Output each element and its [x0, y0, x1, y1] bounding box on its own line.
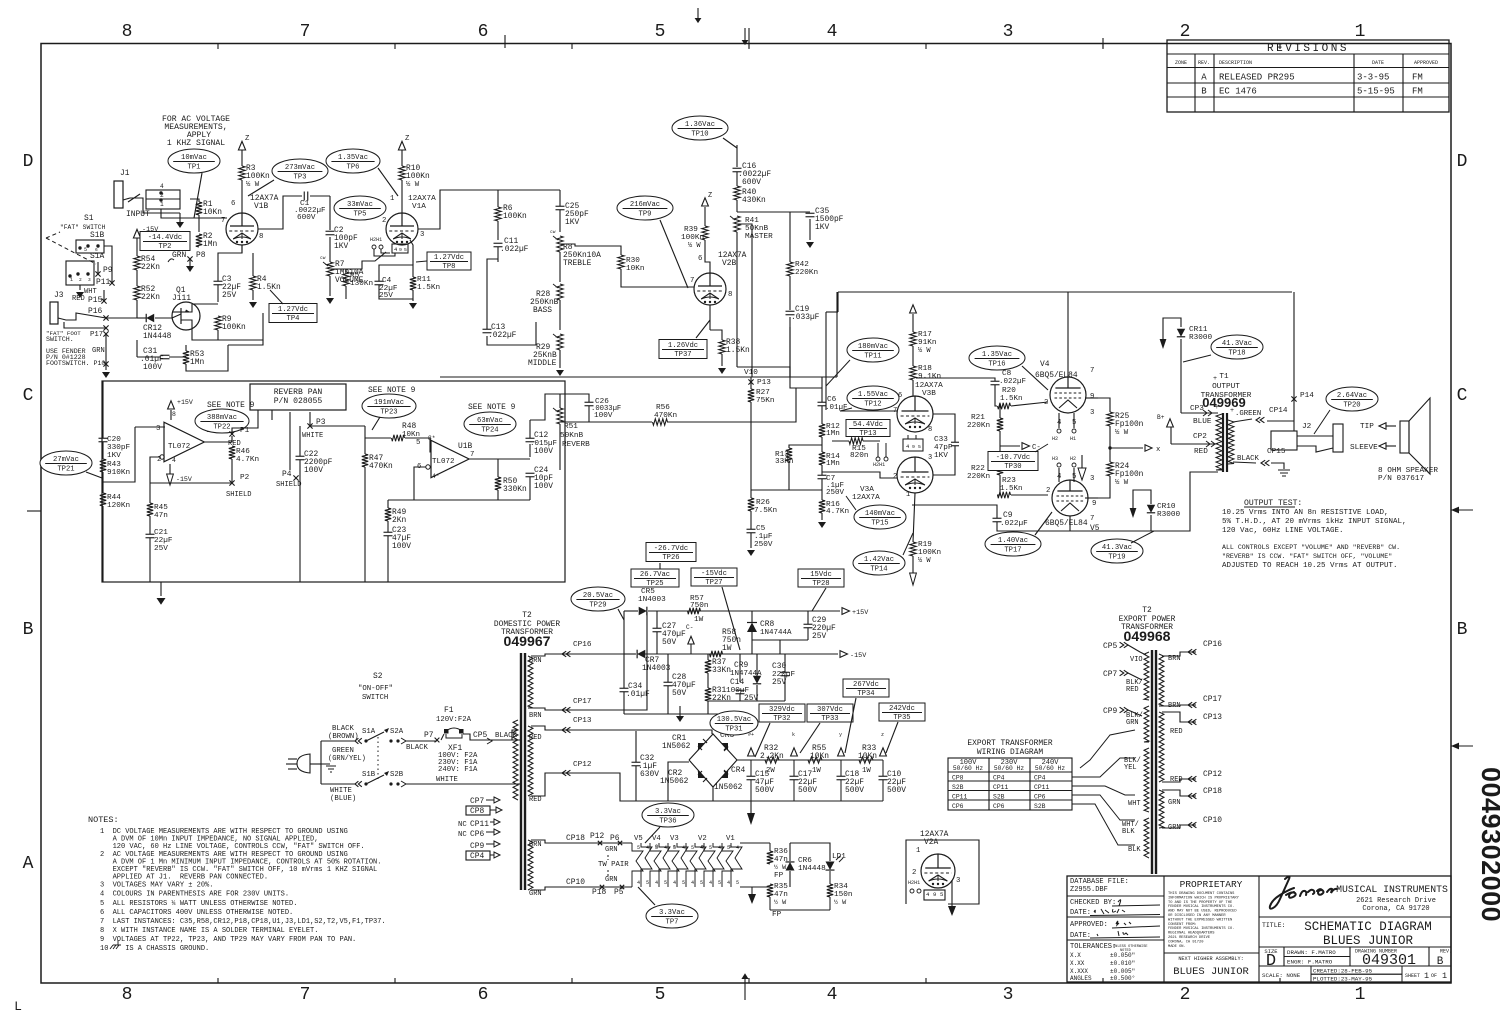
svg-text:CHECKED BY:: CHECKED BY: [1070, 899, 1116, 907]
svg-text:CORONA, CA 91720: CORONA, CA 91720 [1168, 940, 1203, 944]
svg-text:25V: 25V [772, 678, 786, 687]
svg-text:CR9: CR9 [734, 661, 748, 670]
svg-text:100V: 100V [304, 466, 323, 475]
svg-text:SEE NOTE 9: SEE NOTE 9 [468, 403, 516, 412]
svg-text:½ W: ½ W [918, 556, 931, 565]
svg-text:3-3-95: 3-3-95 [1357, 73, 1389, 83]
svg-text:DATE: DATE [1372, 60, 1384, 66]
svg-text:3: 3 [1003, 22, 1014, 42]
svg-text:TP37: TP37 [674, 351, 691, 359]
svg-text:APPLIED AT J1. REVERB PAN CON: APPLIED AT J1. REVERB PAN CONNECTED. [100, 874, 268, 882]
svg-text:330pF: 330pF [107, 444, 130, 452]
svg-text:CP11: CP11 [1034, 784, 1050, 791]
svg-text:R34: R34 [834, 883, 848, 891]
svg-text:1KV: 1KV [334, 242, 348, 251]
svg-text:P11: P11 [96, 278, 110, 287]
svg-text:120V:F2A: 120V:F2A [436, 716, 472, 724]
svg-text:TP36: TP36 [659, 818, 676, 826]
svg-text:TP17: TP17 [1004, 547, 1021, 555]
svg-text:NC: NC [458, 831, 467, 839]
svg-text:1Mn: 1Mn [826, 460, 840, 468]
svg-text:273mVac: 273mVac [285, 164, 315, 172]
svg-text:R56: R56 [656, 404, 670, 412]
svg-text:50V: 50V [672, 689, 686, 698]
svg-text:5: 5 [404, 247, 407, 253]
svg-text:12AX7A: 12AX7A [852, 494, 880, 502]
svg-text:R48: R48 [402, 422, 416, 431]
svg-text:9: 9 [655, 844, 658, 850]
svg-text:CP9: CP9 [1103, 707, 1117, 716]
svg-text:MASTER: MASTER [745, 233, 773, 241]
svg-text:4.7Kn: 4.7Kn [826, 508, 849, 516]
svg-text:WHT: WHT [84, 288, 97, 296]
svg-text:330Kn: 330Kn [503, 485, 527, 494]
svg-text:1.5Kn: 1.5Kn [257, 283, 281, 292]
svg-text:CR5: CR5 [641, 588, 655, 596]
svg-text:12AX7A: 12AX7A [915, 382, 943, 390]
svg-text:216mVac: 216mVac [630, 201, 660, 209]
svg-text:8: 8 [728, 291, 732, 299]
svg-text:6BQ5/EL84: 6BQ5/EL84 [1035, 371, 1078, 380]
svg-text:TP10: TP10 [691, 131, 708, 139]
svg-text:50/60 Hz: 50/60 Hz [994, 765, 1024, 772]
svg-text:MUSICAL INSTRUMENTS: MUSICAL INSTRUMENTS [1336, 884, 1448, 895]
svg-text:1W: 1W [722, 644, 732, 653]
svg-text:2: 2 [382, 217, 386, 225]
svg-text:V5: V5 [634, 835, 643, 843]
svg-text:H2H1: H2H1 [873, 462, 885, 468]
svg-text:B: B [1457, 620, 1468, 640]
svg-text:C9: C9 [1003, 511, 1013, 520]
svg-text:FP: FP [772, 911, 782, 919]
svg-text:Z2955.DBF: Z2955.DBF [1070, 886, 1108, 894]
svg-text:C: C [23, 386, 34, 406]
svg-text:T2: T2 [522, 611, 532, 620]
svg-text:47pF: 47pF [934, 444, 953, 452]
svg-text:TP33: TP33 [821, 715, 838, 723]
svg-text:1.5Kn: 1.5Kn [726, 346, 750, 355]
svg-text:25V: 25V [744, 694, 758, 703]
svg-text:J1: J1 [120, 169, 130, 178]
svg-text:CP9: CP9 [470, 842, 484, 851]
svg-text:MADE ON.: MADE ON. [1168, 945, 1186, 949]
svg-text:CP6: CP6 [470, 830, 484, 839]
svg-text:+: + [1213, 375, 1217, 383]
svg-text:R3000: R3000 [1189, 334, 1212, 342]
svg-text:CP11: CP11 [470, 820, 489, 829]
svg-text:GRN: GRN [92, 347, 105, 355]
svg-text:RED: RED [1126, 686, 1139, 694]
svg-text:4: 4 [682, 845, 685, 851]
svg-text:1.27Vdc: 1.27Vdc [278, 306, 308, 314]
svg-text:7: 7 [1090, 515, 1094, 523]
svg-text:S2B: S2B [390, 771, 404, 779]
svg-text:6: 6 [231, 200, 235, 208]
svg-text:R39: R39 [684, 226, 698, 234]
svg-text:TP16: TP16 [988, 361, 1005, 369]
svg-text:9: 9 [673, 844, 676, 850]
svg-text:P15: P15 [88, 296, 102, 305]
svg-text:GREEN: GREEN [332, 747, 354, 755]
svg-text:CP11: CP11 [952, 794, 968, 801]
svg-text:BLUES JUNIOR: BLUES JUNIOR [1323, 934, 1414, 948]
svg-text:100Kn: 100Kn [681, 234, 704, 242]
svg-text:C14: C14 [730, 678, 744, 687]
svg-text:5: 5 [718, 880, 721, 886]
svg-text:10Kn: 10Kn [626, 265, 644, 273]
svg-text:100Kn: 100Kn [246, 172, 270, 181]
svg-text:.1µF: .1µF [754, 533, 773, 541]
svg-text:RED: RED [1170, 776, 1183, 784]
svg-text:26.7Vac: 26.7Vac [640, 571, 670, 579]
svg-text:RED: RED [1194, 448, 1208, 456]
svg-text:0049302000: 0049302000 [1476, 767, 1500, 922]
svg-text:TP8: TP8 [443, 263, 456, 271]
svg-text:BLUE: BLUE [1193, 418, 1212, 426]
svg-text:D: D [1266, 952, 1276, 971]
svg-text:SHIELD: SHIELD [276, 481, 302, 489]
svg-text:P13: P13 [757, 379, 771, 387]
svg-text:C33: C33 [934, 436, 948, 444]
svg-text:100V: 100V [143, 363, 162, 372]
svg-text:TP24: TP24 [481, 427, 498, 435]
svg-text:½ W: ½ W [774, 863, 787, 872]
svg-text:+15V: +15V [177, 399, 193, 406]
svg-text:P16: P16 [88, 307, 102, 316]
svg-text:1: 1 [916, 847, 921, 855]
svg-text:100Kn: 100Kn [222, 323, 246, 332]
svg-text:V2A: V2A [924, 838, 938, 847]
svg-text:TP19: TP19 [1108, 554, 1125, 562]
svg-text:1KV: 1KV [565, 218, 579, 227]
svg-text:S1B: S1B [90, 231, 104, 240]
svg-text:1W: 1W [812, 767, 821, 775]
svg-text:V10: V10 [744, 369, 758, 377]
svg-text:TP21: TP21 [57, 466, 74, 474]
svg-text:CP5: CP5 [1103, 642, 1117, 651]
svg-text:½ W: ½ W [1115, 428, 1129, 437]
svg-text:CP4: CP4 [1034, 775, 1046, 782]
svg-text:BLACK: BLACK [332, 725, 355, 733]
svg-text:4: 4 [637, 880, 640, 886]
svg-text:049968: 049968 [1123, 628, 1170, 644]
svg-text:.033µF: .033µF [791, 313, 820, 322]
svg-text:1N4448: 1N4448 [798, 865, 826, 873]
svg-text:100V: 100V [534, 482, 553, 491]
svg-text:5: 5 [655, 22, 666, 42]
svg-text:600V: 600V [742, 178, 761, 187]
svg-text:L: L [14, 999, 22, 1014]
svg-text:TP9: TP9 [639, 211, 652, 219]
svg-text:k: k [792, 732, 795, 738]
svg-text:ZONE: ZONE [1175, 60, 1187, 66]
svg-text:½ W: ½ W [774, 898, 787, 907]
svg-text:OF: OF [1431, 973, 1437, 979]
svg-text:22µF: 22µF [154, 537, 173, 545]
svg-text:B: B [1201, 87, 1207, 97]
svg-text:DATE:: DATE: [1070, 932, 1091, 940]
svg-text:5: 5 [682, 880, 685, 886]
svg-text:BLK: BLK [1122, 828, 1135, 836]
svg-text:4: 4 [664, 845, 667, 851]
svg-text:H2: H2 [1070, 456, 1076, 462]
svg-text:1KV: 1KV [815, 223, 829, 232]
svg-text:D: D [23, 152, 34, 172]
svg-text:R51: R51 [564, 423, 578, 431]
svg-text:5: 5 [736, 880, 739, 886]
svg-text:75Kn: 75Kn [756, 397, 774, 405]
svg-text:33mVac: 33mVac [347, 201, 373, 209]
svg-text:P7: P7 [424, 731, 434, 740]
svg-text:7: 7 [300, 22, 311, 42]
svg-text:R23: R23 [1002, 477, 1016, 485]
svg-text:T2: T2 [1142, 606, 1152, 615]
svg-text:SCALE: NONE: SCALE: NONE [1262, 972, 1301, 979]
svg-text:12AX7A: 12AX7A [408, 195, 436, 203]
svg-text:140mVac: 140mVac [865, 510, 895, 518]
svg-text:CP6: CP6 [993, 803, 1005, 810]
svg-text:329Vdc: 329Vdc [769, 706, 795, 714]
svg-text:BLK: BLK [1128, 846, 1141, 854]
svg-text:5: 5 [84, 247, 87, 253]
svg-text:Fp100n: Fp100n [1115, 420, 1144, 429]
svg-text:6: 6 [698, 255, 702, 263]
svg-text:1N4744A: 1N4744A [760, 629, 792, 637]
svg-text:500V: 500V [845, 786, 864, 795]
svg-text:TW PAIR: TW PAIR [598, 861, 629, 869]
svg-text:P5: P5 [614, 888, 624, 897]
svg-text:V5: V5 [1090, 524, 1100, 533]
svg-text:1: 1 [1355, 22, 1366, 42]
svg-text:C20: C20 [107, 436, 121, 444]
svg-text:R46: R46 [236, 448, 250, 456]
svg-text:1: 1 [1355, 985, 1366, 1005]
svg-text:CP5: CP5 [473, 731, 487, 740]
svg-text:5-15-95: 5-15-95 [1357, 87, 1395, 97]
svg-text:½ W: ½ W [918, 346, 931, 355]
svg-text:10.25 Vrms INTO AN 8n RESISTIV: 10.25 Vrms INTO AN 8n RESISTIVE LOAD, [1222, 509, 1389, 517]
svg-text:C8: C8 [1002, 370, 1012, 378]
svg-text:S2: S2 [373, 672, 383, 681]
svg-text:Z: Z [708, 192, 712, 200]
svg-text:CREATED:28-FEB-95: CREATED:28-FEB-95 [1313, 968, 1373, 975]
svg-text:BASS: BASS [533, 306, 552, 315]
svg-text:242Vdc: 242Vdc [889, 705, 915, 713]
svg-text:5: 5 [416, 439, 420, 447]
svg-text:191mVac: 191mVac [374, 399, 404, 407]
svg-text:130Kn: 130Kn [350, 280, 373, 288]
svg-text:H2H1: H2H1 [908, 880, 920, 886]
svg-text:GRN: GRN [529, 890, 542, 898]
svg-text:CR4: CR4 [731, 766, 745, 775]
svg-text:S2B: S2B [1034, 803, 1046, 810]
svg-text:F1: F1 [444, 706, 454, 715]
svg-text:R43: R43 [107, 461, 121, 469]
svg-text:cw: cw [320, 256, 326, 261]
svg-text:CR8: CR8 [760, 620, 774, 629]
svg-text:8: 8 [122, 22, 133, 42]
svg-text:(GRN/YEL): (GRN/YEL) [328, 755, 366, 763]
svg-text:1: 1 [1424, 971, 1429, 981]
svg-text:C12: C12 [534, 431, 548, 440]
svg-text:4*: 4* [432, 473, 439, 480]
svg-text:CP7: CP7 [470, 797, 484, 806]
svg-text:4: 4 [172, 457, 176, 464]
svg-text:2: 2 [893, 473, 897, 481]
svg-text:1: 1 [160, 201, 164, 208]
svg-text:5: 5 [655, 985, 666, 1005]
svg-text:X.XXX: X.XXX [1070, 968, 1088, 975]
svg-text:CR11: CR11 [1189, 326, 1208, 334]
svg-text:1.55Vac: 1.55Vac [858, 391, 888, 399]
svg-text:91Kn: 91Kn [918, 339, 936, 347]
svg-text:7: 7 [470, 451, 474, 459]
svg-text:2621 RESEARCH DRIVE: 2621 RESEARCH DRIVE [1168, 936, 1211, 940]
svg-text:CP6: CP6 [952, 803, 964, 810]
svg-text:GRN: GRN [605, 876, 618, 884]
svg-text:H3: H3 [1052, 456, 1058, 462]
svg-text:TP11: TP11 [864, 353, 881, 361]
svg-text:1W: 1W [862, 767, 871, 775]
svg-text:½ W: ½ W [246, 180, 260, 189]
svg-text:TP25: TP25 [646, 580, 663, 588]
svg-text:FM: FM [1412, 73, 1423, 83]
svg-text:100Kn: 100Kn [406, 172, 430, 181]
svg-text:220Kn: 220Kn [967, 422, 990, 430]
svg-text:MIDDLE: MIDDLE [528, 359, 557, 368]
svg-text:7: 7 [1090, 367, 1094, 375]
svg-text:(BLUE): (BLUE) [330, 795, 356, 803]
svg-text:600V: 600V [297, 214, 316, 222]
svg-text:S2B: S2B [993, 794, 1005, 801]
svg-text:WIRING DIAGRAM: WIRING DIAGRAM [977, 748, 1044, 757]
svg-text:H2: H2 [1052, 436, 1058, 442]
svg-text:-14.4Vdc: -14.4Vdc [148, 234, 183, 242]
svg-text:50KnB: 50KnB [745, 225, 768, 233]
svg-text:6: 6 [478, 22, 489, 42]
svg-text:FENDER MUSICAL INSTRUMENTS CO.: FENDER MUSICAL INSTRUMENTS CO. [1168, 905, 1234, 909]
svg-text:.022µF: .022µF [500, 245, 529, 254]
svg-text:22Kn: 22Kn [141, 293, 160, 302]
svg-text:1Mn: 1Mn [826, 430, 840, 438]
svg-text:V2B: V2B [722, 259, 736, 268]
svg-text:100V: 100V [534, 447, 553, 456]
svg-text:3.3Vac: 3.3Vac [655, 808, 681, 816]
svg-text:4: 4 [718, 845, 721, 851]
svg-text:B+: B+ [1157, 414, 1165, 421]
svg-text:REV.: REV. [1440, 949, 1452, 955]
svg-text:910Kn: 910Kn [107, 469, 130, 477]
svg-text:REVERB PAN: REVERB PAN [274, 388, 323, 397]
svg-text:22Kn: 22Kn [141, 263, 160, 272]
svg-text:z: z [881, 732, 884, 738]
svg-text:CP18: CP18 [1203, 787, 1222, 796]
svg-text:50/60 Hz: 50/60 Hz [1035, 765, 1065, 772]
svg-text:4: 4 [673, 880, 676, 886]
svg-text:TP20: TP20 [1343, 402, 1360, 410]
svg-text:33Kn: 33Kn [712, 666, 731, 675]
svg-text:049969: 049969 [1202, 395, 1245, 410]
svg-text:INPUT: INPUT [126, 210, 150, 219]
svg-text:2: 2 [1046, 487, 1050, 495]
svg-text:C30: C30 [772, 662, 786, 671]
svg-text:3: 3 [1090, 475, 1094, 483]
svg-text:YEL: YEL [1124, 764, 1137, 772]
svg-text:CP13: CP13 [573, 717, 592, 725]
svg-text:X.XX: X.XX [1070, 960, 1085, 967]
svg-text:4: 4 [736, 845, 739, 851]
svg-text:R44: R44 [107, 494, 121, 502]
svg-text:47n: 47n [154, 512, 168, 520]
svg-text:Z: Z [245, 135, 250, 143]
svg-text:33Kn: 33Kn [775, 458, 793, 466]
svg-text:J2: J2 [1302, 423, 1312, 431]
svg-text:9: 9 [399, 247, 402, 253]
svg-text:41.3Vac: 41.3Vac [1222, 340, 1252, 348]
svg-text:1Mn: 1Mn [203, 240, 217, 249]
svg-text:WHITE: WHITE [302, 432, 323, 440]
svg-text:P18: P18 [592, 888, 606, 897]
svg-text:.022µF: .022µF [488, 331, 517, 340]
svg-text:V1B: V1B [254, 202, 268, 211]
svg-text:CP18: CP18 [566, 834, 585, 843]
svg-text:OR DISCLOSED IN ANY MANNER: OR DISCLOSED IN ANY MANNER [1168, 914, 1226, 918]
svg-text:2: 2 [912, 869, 916, 877]
svg-text:120Kn: 120Kn [107, 502, 130, 510]
svg-text:±0.050": ±0.050" [1110, 952, 1135, 959]
svg-text:4: 4 [827, 22, 838, 42]
svg-text:R30: R30 [626, 257, 640, 265]
svg-text:V2: V2 [698, 835, 707, 843]
svg-text:3: 3 [956, 877, 960, 885]
svg-text:220Kn: 220Kn [795, 269, 818, 277]
svg-text:500V: 500V [798, 786, 817, 795]
svg-text:430Kn: 430Kn [742, 196, 766, 205]
svg-text:CP15: CP15 [1267, 448, 1286, 456]
svg-text:V4: V4 [652, 835, 661, 843]
svg-text:ENGR: F.MATRO: ENGR: F.MATRO [1287, 959, 1333, 966]
svg-text:R11: R11 [417, 276, 431, 284]
svg-text:5: 5 [664, 880, 667, 886]
svg-text:120 VAC, 60 Hz LINE VOLTAGE, C: 120 VAC, 60 Hz LINE VOLTAGE, CONTROLS CC… [100, 843, 365, 851]
svg-text:CP10: CP10 [566, 878, 585, 887]
svg-text:TP26: TP26 [662, 554, 679, 562]
svg-text:WHT: WHT [1128, 800, 1141, 808]
svg-text:1W: 1W [694, 616, 704, 624]
svg-text:REV.: REV. [1198, 60, 1210, 66]
svg-text:±0.500°: ±0.500° [1110, 975, 1135, 982]
svg-text:5: 5 [691, 845, 694, 851]
svg-text:500V: 500V [887, 786, 906, 795]
svg-text:R19: R19 [918, 541, 932, 549]
svg-text:7.5Kn: 7.5Kn [754, 507, 777, 515]
svg-text:V1: V1 [726, 835, 735, 843]
svg-text:RELEASED PR295: RELEASED PR295 [1219, 73, 1295, 83]
svg-text:7: 7 [221, 217, 225, 225]
svg-text:388mVac: 388mVac [207, 414, 237, 422]
svg-text:470Kn: 470Kn [369, 462, 393, 471]
svg-text:-15V: -15V [176, 476, 192, 483]
svg-text:+15V: +15V [852, 609, 869, 617]
svg-text:C6: C6 [827, 396, 837, 404]
svg-text:R36: R36 [774, 848, 788, 856]
svg-text:1N4003: 1N4003 [642, 664, 671, 673]
svg-text:LD1: LD1 [832, 853, 846, 861]
svg-text:DATE:: DATE: [1070, 909, 1091, 917]
svg-text:R20: R20 [1002, 387, 1016, 395]
svg-text:41.3Vac: 41.3Vac [1102, 544, 1132, 552]
svg-text:CP2: CP2 [1193, 433, 1207, 441]
